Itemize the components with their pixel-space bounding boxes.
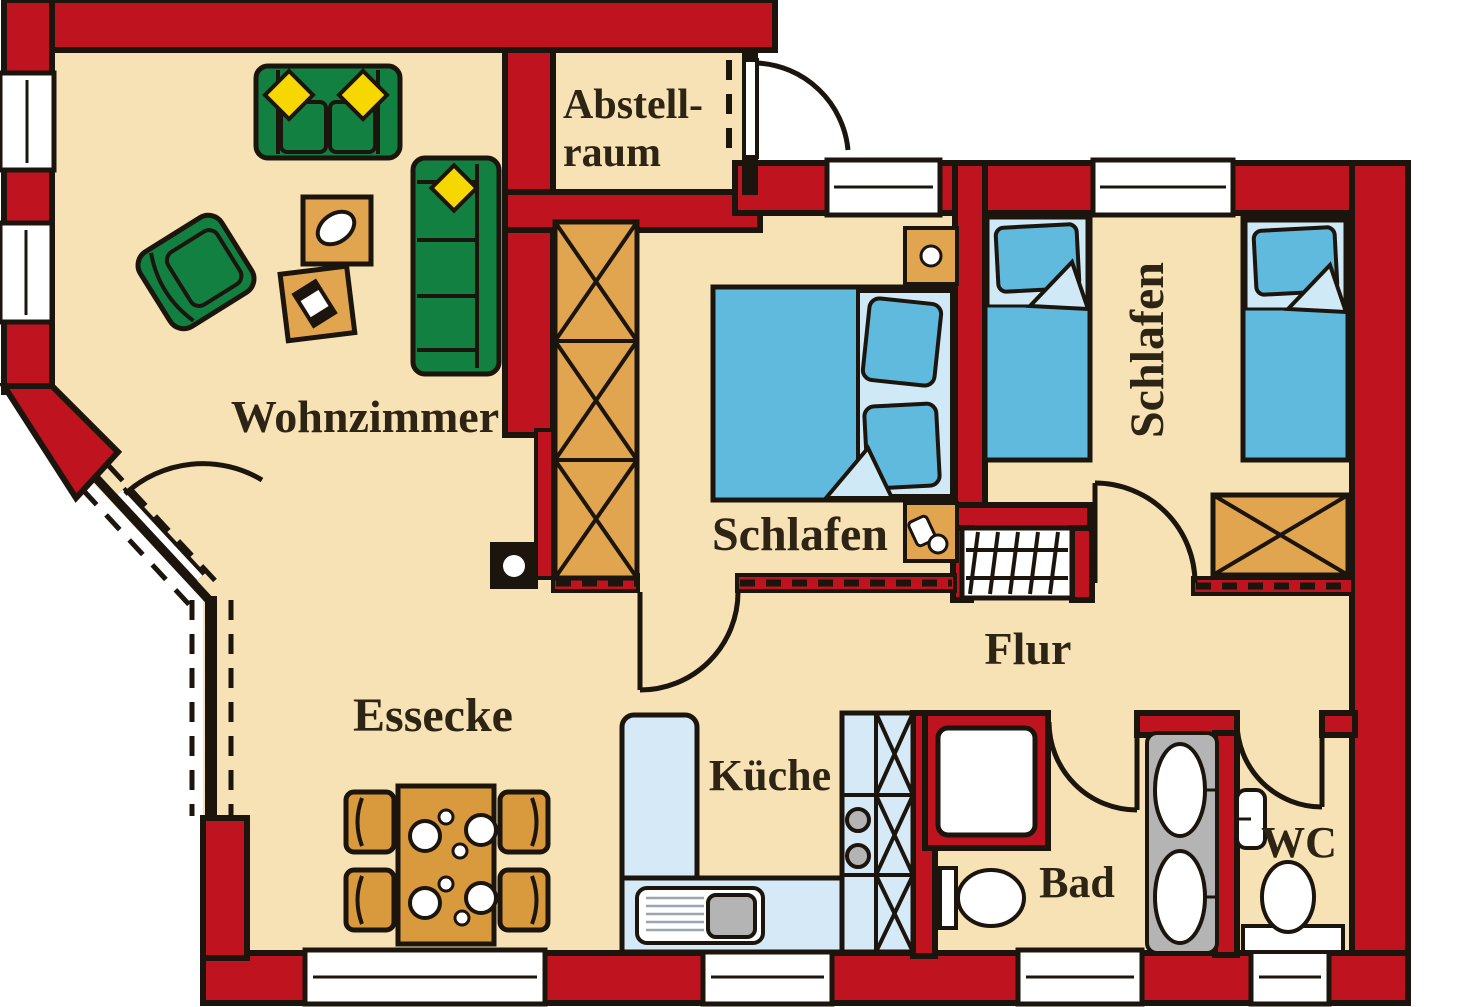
cup	[439, 810, 453, 824]
wall-right	[1352, 163, 1408, 1003]
wall-divider-living-bedroom	[505, 50, 553, 435]
single-bed-left	[985, 215, 1090, 460]
dining-chair	[346, 792, 394, 852]
wall-divider-lower	[536, 430, 553, 578]
wall-bottom-left-corner	[203, 818, 247, 958]
side-table	[280, 266, 355, 341]
stove-burner	[847, 809, 869, 831]
cup	[455, 911, 469, 925]
dining-chair	[500, 870, 548, 930]
vanity-double-sink	[1147, 733, 1218, 953]
window	[1251, 950, 1329, 1004]
wall-left	[4, 0, 52, 392]
wall-stub	[742, 155, 758, 195]
plate	[466, 883, 496, 913]
label-flur: Flur	[985, 623, 1072, 674]
dining-chair	[500, 792, 548, 852]
single-bed-right	[1243, 218, 1348, 460]
wall-bedroom-divider	[955, 163, 985, 511]
basin	[1155, 851, 1205, 943]
coffee-table	[303, 197, 371, 264]
floor-plan-svg: Wohnzimmer Abstell- raum Schlafen Schlaf…	[0, 0, 1460, 1007]
floor-plan: Wohnzimmer Abstell- raum Schlafen Schlaf…	[0, 0, 1460, 1007]
shower	[938, 728, 1035, 835]
label-essecke: Essecke	[353, 689, 513, 742]
wardrobe	[555, 222, 637, 578]
wall-wc-top	[1322, 713, 1355, 735]
wall-top	[4, 0, 775, 50]
sofa-three-seat	[413, 158, 499, 374]
window	[827, 160, 940, 215]
plate	[410, 821, 440, 851]
nightstand	[905, 228, 957, 284]
plate	[410, 888, 440, 918]
kitchen-counter	[622, 715, 697, 887]
label-schlafen-mitte: Schlafen	[712, 508, 888, 561]
label-kueche: Küche	[709, 751, 831, 800]
chimney	[490, 542, 538, 589]
cup	[453, 844, 467, 858]
label-wc: WC	[1261, 818, 1337, 867]
window	[1018, 950, 1142, 1004]
cup	[439, 877, 453, 891]
label-wohnzimmer: Wohnzimmer	[231, 391, 499, 442]
double-bed	[713, 287, 955, 500]
wall-stair-niche-right	[1072, 528, 1092, 600]
glazed-wall-line	[205, 596, 217, 820]
nightstand	[905, 503, 957, 561]
label-abstellraum-line1: Abstell-	[563, 82, 703, 128]
basin	[1155, 744, 1205, 836]
window	[703, 950, 832, 1004]
plate	[466, 815, 496, 845]
window	[1093, 160, 1233, 215]
stove-burner	[847, 845, 869, 867]
wardrobe	[1213, 495, 1348, 575]
pillow	[862, 297, 942, 386]
label-schlafen-rechts: Schlafen	[1121, 262, 1174, 438]
window	[0, 223, 52, 322]
sink-basin	[708, 895, 755, 937]
toilet	[1262, 862, 1314, 932]
sofa-two-seat	[256, 66, 400, 158]
toilet	[940, 868, 1024, 928]
window	[305, 950, 545, 1004]
tall-cabinet	[842, 713, 913, 952]
dining-chair	[346, 870, 394, 930]
stairs	[962, 528, 1072, 598]
window	[0, 73, 54, 170]
label-bad: Bad	[1039, 858, 1115, 907]
label-abstellraum-line2: raum	[563, 130, 661, 176]
kitchen-sink	[637, 888, 763, 943]
